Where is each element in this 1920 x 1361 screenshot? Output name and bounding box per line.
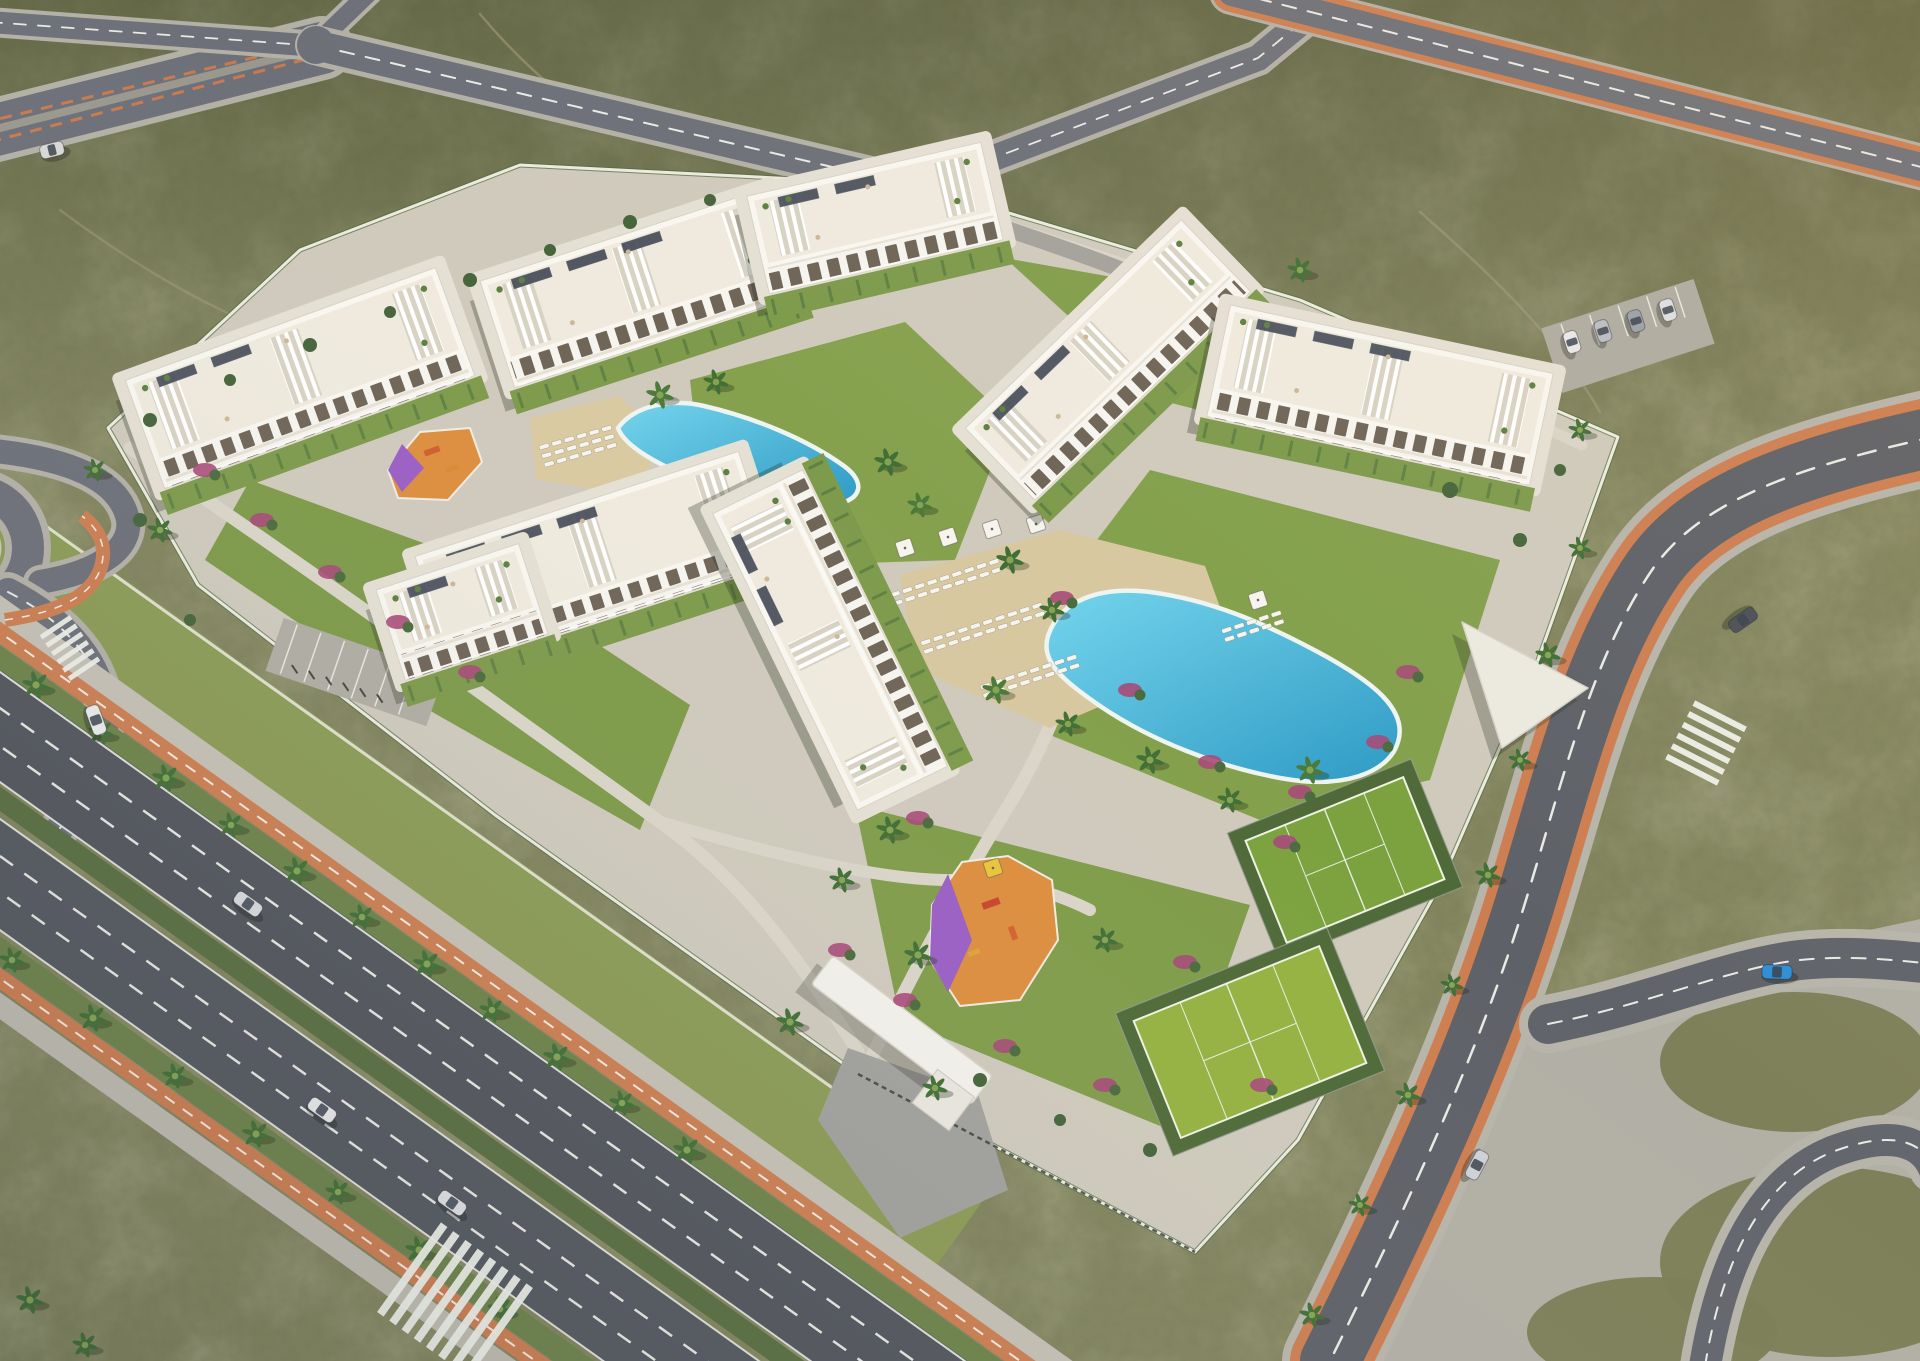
aerial-render-canvas [0,0,1920,1361]
aerial-site-render [0,0,1920,1361]
warm-light-overlay [0,0,1920,1361]
